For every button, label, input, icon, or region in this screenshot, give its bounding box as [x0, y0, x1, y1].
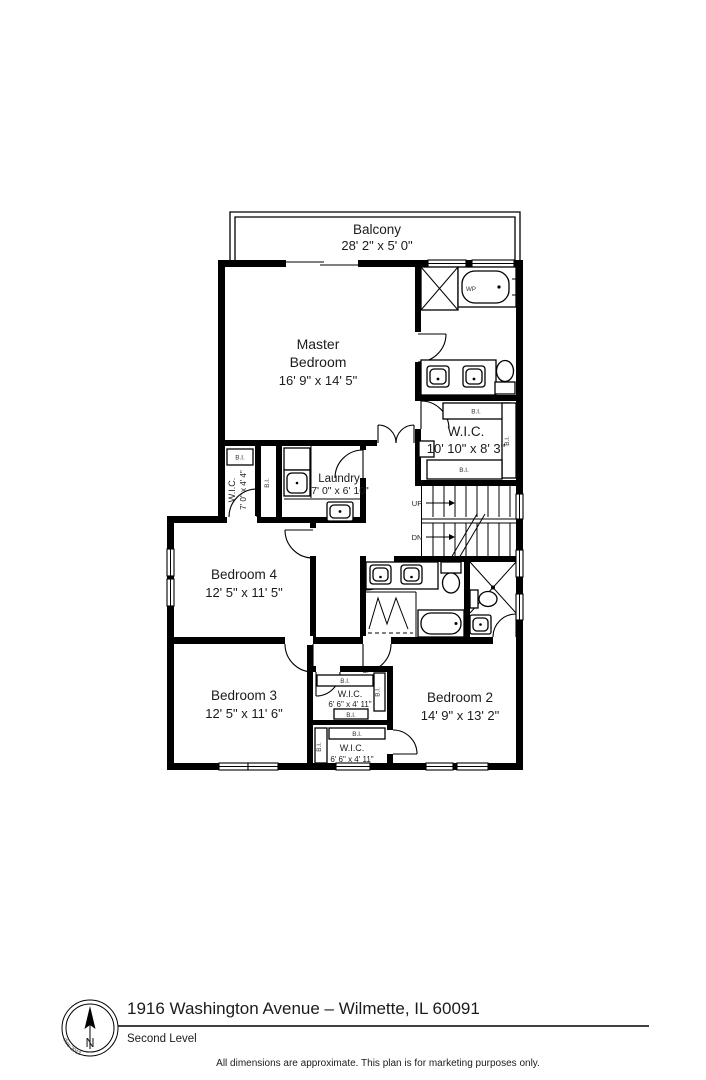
compass-north-label: N: [85, 1036, 94, 1050]
toilet-tank: [470, 590, 478, 608]
bedroom3-wic-dims: 6' 6" x 4' 11": [328, 700, 371, 709]
master-bedroom-label-1: Master: [297, 336, 340, 352]
footer: N © VHT Studios 2013 1916 Washington Ave…: [0, 0, 649, 1069]
laundry-label: Laundry: [318, 473, 360, 485]
compass-credit: © VHT Studios 2013: [0, 0, 82, 1057]
balcony-label: Balcony: [353, 222, 401, 237]
built-in-label: B.I.: [346, 712, 356, 719]
built-in-label: B.I.: [459, 467, 469, 474]
built-in-label: B.I.: [316, 742, 323, 752]
laundry-dims: 7' 0" x 6' 10": [311, 485, 369, 497]
toilet: [479, 592, 497, 607]
bedroom2-dims: 14' 9" x 13' 2": [421, 708, 500, 723]
bedroom2-label: Bedroom 2: [427, 690, 493, 705]
built-in-label: B.I.: [235, 455, 245, 462]
bedroom3-label: Bedroom 3: [211, 688, 277, 703]
whirlpool-label: WP: [466, 286, 476, 293]
hall-bath-fixtures: [366, 562, 464, 637]
stairs-up-label: UP: [412, 499, 422, 508]
master-bath-fixtures: WP: [421, 267, 516, 395]
disclaimer-text: All dimensions are approximate. This pla…: [216, 1058, 540, 1069]
bedroom3-wic-label: W.I.C.: [338, 689, 363, 699]
level-label: Second Level: [127, 1033, 197, 1045]
built-in-label: B.I.: [375, 687, 382, 697]
master-bedroom-dims: 16' 9" x 14' 5": [279, 373, 358, 388]
floor-plan-canvas: UP DN WP B.I. B.I. B.I.: [0, 0, 706, 1080]
built-in-label: B.I.: [340, 678, 350, 685]
bedroom4-dims: 12' 5" x 11' 5": [205, 585, 283, 600]
toilet: [443, 573, 460, 593]
bedroom2-wic-label: W.I.C.: [340, 743, 365, 753]
stairs-down-label: DN: [412, 533, 423, 542]
built-in-label: B.I.: [471, 409, 481, 416]
hall-wic-dims: 7' 0" x 4' 4": [239, 470, 248, 510]
bedroom3-dims: 12' 5" x 11' 6": [205, 706, 283, 721]
closet-rod-symbol: [369, 598, 408, 629]
master-wic-label: W.I.C.: [448, 424, 485, 439]
bedroom2-wic-dims: 6' 6" x 4' 11": [330, 755, 373, 764]
built-in-label: B.I.: [352, 731, 362, 738]
toilet: [497, 361, 514, 382]
address-title: 1916 Washington Avenue – Wilmette, IL 60…: [127, 999, 480, 1018]
master-bedroom-label-2: Bedroom: [290, 354, 347, 370]
floor-plan-page: UP DN WP B.I. B.I. B.I.: [0, 0, 706, 1080]
staircase: UP DN: [412, 486, 516, 558]
hall-wic-label: W.I.C.: [227, 478, 237, 503]
bedroom4-label: Bedroom 4: [211, 567, 278, 582]
master-wic-dims: 10' 10" x 8' 3": [427, 441, 506, 456]
balcony-dims: 28' 2" x 5' 0": [341, 238, 413, 253]
toilet-tank: [441, 562, 461, 573]
bedroom2-bath-fixtures: [470, 562, 516, 634]
built-in-label: B.I.: [264, 478, 271, 488]
shower-drain: [491, 586, 495, 590]
